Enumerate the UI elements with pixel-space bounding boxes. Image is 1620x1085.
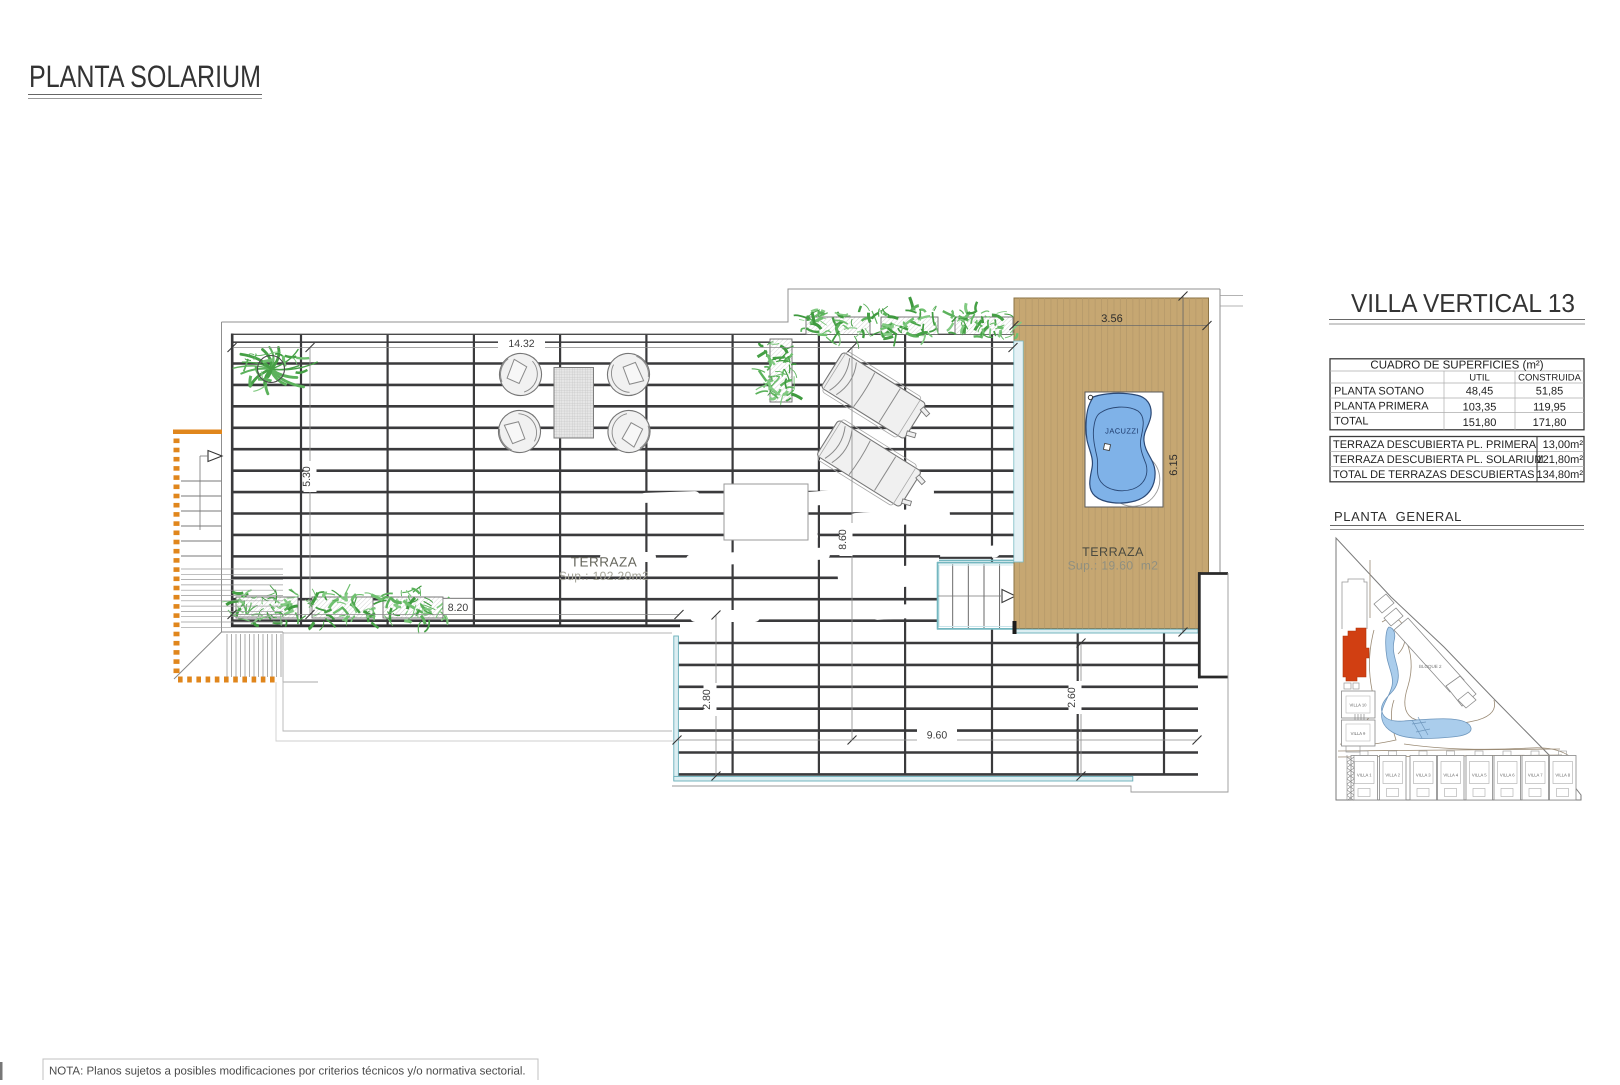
svg-text:5.30: 5.30 (301, 466, 313, 487)
svg-text:119,95: 119,95 (1533, 402, 1566, 414)
svg-text:8.20: 8.20 (448, 602, 469, 614)
svg-text:VILLA 10: VILLA 10 (1350, 703, 1368, 708)
svg-text:BLOQUE 2: BLOQUE 2 (1419, 664, 1442, 669)
svg-text:51,85: 51,85 (1536, 386, 1564, 398)
svg-text:3.56: 3.56 (1101, 313, 1122, 325)
svg-text:PLANTA PRIMERA: PLANTA PRIMERA (1334, 401, 1429, 413)
svg-text:VILLA 7: VILLA 7 (1528, 773, 1543, 778)
svg-text:TERRAZA: TERRAZA (1082, 545, 1144, 559)
svg-text:NOTA: Planos sujetos a posible: NOTA: Planos sujetos a posibles modifica… (49, 1066, 526, 1078)
svg-text:TERRAZA: TERRAZA (571, 555, 638, 570)
svg-text:TERRAZA DESCUBIERTA PL. PRIMER: TERRAZA DESCUBIERTA PL. PRIMERA (1333, 439, 1537, 451)
svg-text:JACUZZI: JACUZZI (1105, 427, 1139, 436)
svg-text:121,80m²: 121,80m² (1537, 454, 1584, 466)
svg-text:CUADRO DE SUPERFICIES (m²): CUADRO DE SUPERFICIES (m²) (1370, 359, 1543, 371)
svg-text:VILLA 2: VILLA 2 (1385, 773, 1400, 778)
svg-text:14.32: 14.32 (508, 338, 534, 350)
svg-text:171,80: 171,80 (1533, 417, 1567, 429)
svg-text:Sup.: 102.20m2: Sup.: 102.20m2 (559, 569, 649, 583)
svg-text:2.60: 2.60 (1066, 687, 1078, 708)
svg-text:VILLA VERTICAL 13: VILLA VERTICAL 13 (1351, 288, 1575, 318)
svg-text:VILLA 8: VILLA 8 (1555, 773, 1570, 778)
svg-text:VILLA 9: VILLA 9 (1351, 731, 1366, 736)
svg-text:UTIL: UTIL (1469, 372, 1490, 383)
svg-text:48,45: 48,45 (1466, 386, 1494, 398)
svg-text:Sup.: 19.60 m2: Sup.: 19.60 m2 (1068, 559, 1159, 573)
svg-text:TOTAL DE TERRAZAS DESCUBIERTAS: TOTAL DE TERRAZAS DESCUBIERTAS (1333, 469, 1535, 481)
svg-text:VILLA 5: VILLA 5 (1472, 773, 1487, 778)
svg-text:134,80m²: 134,80m² (1537, 469, 1584, 481)
svg-text:8.60: 8.60 (837, 529, 849, 550)
svg-text:VILLA 3: VILLA 3 (1416, 773, 1431, 778)
svg-text:VILLA 4: VILLA 4 (1443, 773, 1458, 778)
svg-text:6.15: 6.15 (1168, 454, 1180, 475)
svg-text:VILLA 6: VILLA 6 (1500, 773, 1515, 778)
svg-text:TERRAZA DESCUBIERTA PL. SOLARI: TERRAZA DESCUBIERTA PL. SOLARIUM (1333, 454, 1543, 466)
svg-text:13,00m²: 13,00m² (1543, 439, 1584, 451)
svg-text:PLANTA SOLARIUM: PLANTA SOLARIUM (29, 59, 261, 94)
svg-text:9.60: 9.60 (927, 730, 948, 742)
svg-text:PLANTA GENERAL: PLANTA GENERAL (1334, 509, 1462, 524)
svg-text:PLANTA SOTANO: PLANTA SOTANO (1334, 386, 1425, 398)
svg-text:VILLA 1: VILLA 1 (1357, 773, 1372, 778)
svg-text:103,35: 103,35 (1463, 402, 1497, 414)
svg-text:TOTAL: TOTAL (1334, 416, 1368, 428)
svg-text:2.80: 2.80 (701, 689, 713, 710)
svg-text:151,80: 151,80 (1463, 417, 1497, 429)
svg-text:CONSTRUIDA: CONSTRUIDA (1518, 372, 1581, 383)
